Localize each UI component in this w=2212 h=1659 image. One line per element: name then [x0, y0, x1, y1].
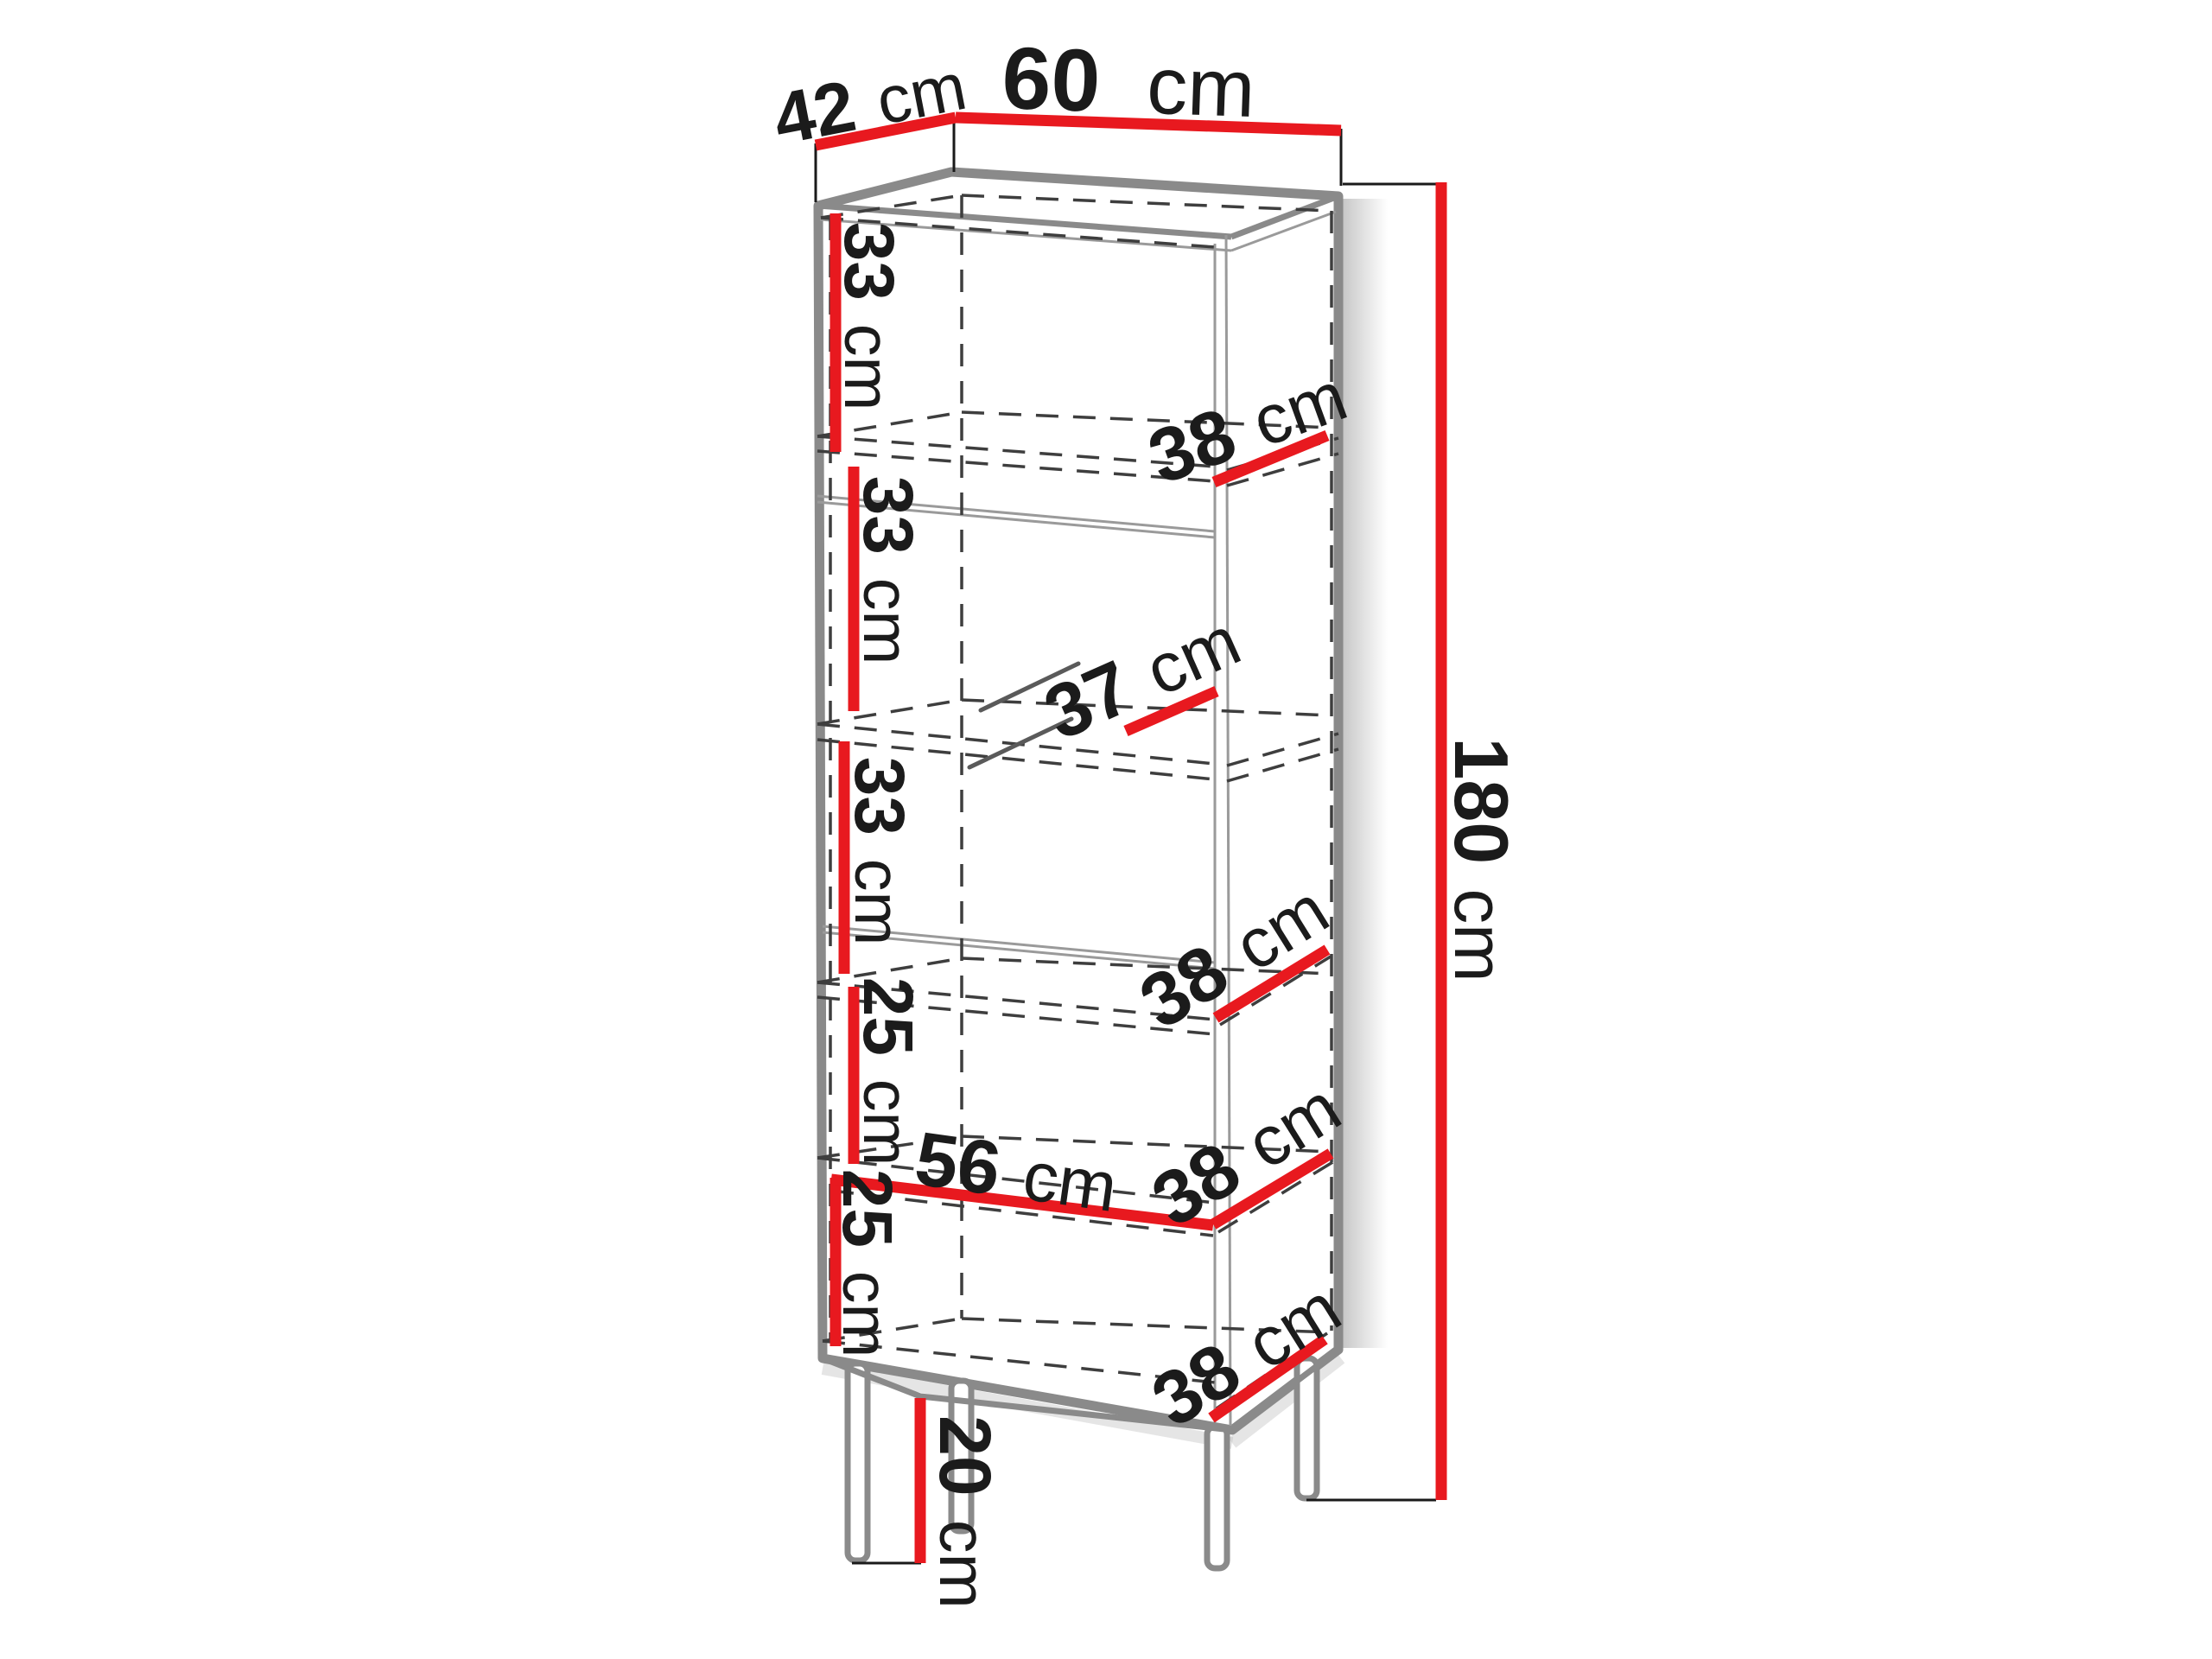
dim-value: 25	[828, 1169, 906, 1248]
dim-label-section1: 33 cm	[829, 222, 908, 411]
dim-value: 33	[829, 222, 908, 301]
dim-value: 56	[910, 1115, 1006, 1211]
dim-label-section3: 33 cm	[840, 757, 918, 946]
dim-value: 33	[840, 757, 918, 836]
front-right-leg	[1207, 1427, 1227, 1568]
dim-value: 20	[925, 1415, 1006, 1496]
dim-label-section5: 25 cm	[828, 1169, 906, 1358]
diagram-canvas: 42 cm 60 cm 180 cm 33 cm 33 cm 33 cm 25 …	[0, 0, 2212, 1659]
dim-unit: cm	[842, 859, 914, 946]
dim-unit: cm	[850, 1079, 923, 1166]
dim-value: 33	[849, 476, 927, 555]
dim-value: 42	[767, 65, 862, 160]
dim-unit: cm	[1019, 1137, 1122, 1227]
right-shadow-band	[1343, 199, 1388, 1348]
dim-label-depth-top: 42 cm	[767, 43, 973, 160]
front-left-leg	[848, 1363, 868, 1560]
dim-label-legs-height: 20 cm	[925, 1415, 1006, 1609]
dim-label-section4: 25 cm	[849, 977, 927, 1166]
dim-unit: cm	[925, 1520, 1000, 1609]
dim-unit: cm	[831, 324, 904, 411]
dim-label-height-total: 180 cm	[1439, 737, 1524, 982]
dim-unit: cm	[829, 1271, 902, 1358]
dim-label-section2: 33 cm	[849, 476, 927, 665]
furniture-dimension-diagram: 42 cm 60 cm 180 cm 33 cm 33 cm 33 cm 25 …	[0, 0, 2212, 1659]
dim-unit: cm	[850, 578, 923, 665]
dim-unit: cm	[1440, 889, 1517, 982]
dim-unit: cm	[871, 49, 973, 139]
dim-value: 60	[1001, 29, 1102, 130]
dim-value: 180	[1439, 737, 1524, 864]
dim-unit: cm	[1146, 40, 1257, 134]
dim-value: 25	[849, 977, 927, 1056]
